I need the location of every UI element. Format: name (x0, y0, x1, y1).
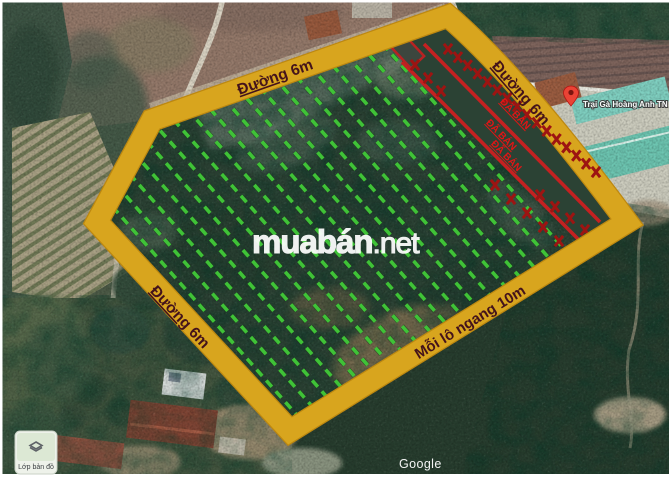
svg-text:Trại Gà Hoàng Anh TN: Trại Gà Hoàng Anh TN (583, 100, 668, 109)
svg-text:muabán.net: muabán.net (252, 223, 420, 260)
svg-text:Lớp bản đồ: Lớp bản đồ (18, 462, 54, 471)
svg-text:Google: Google (399, 457, 442, 471)
